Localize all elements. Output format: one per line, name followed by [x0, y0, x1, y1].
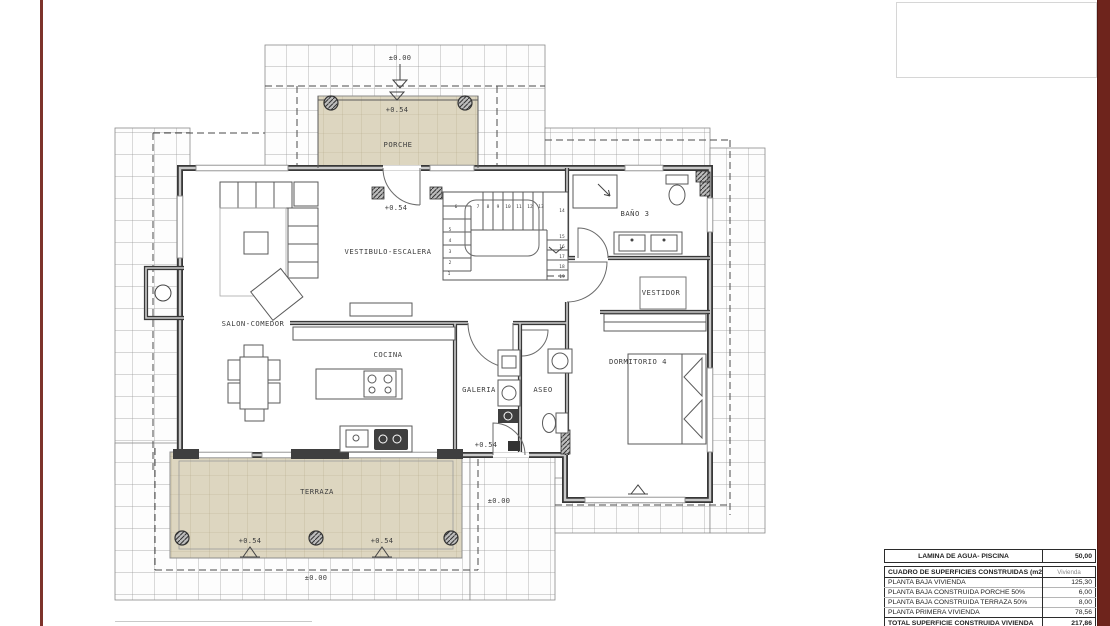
terrace-column-icon — [444, 531, 458, 545]
stair-number: 14 — [559, 208, 565, 214]
stair-number: 1 — [448, 271, 451, 277]
surface-row-label: PLANTA BAJA CONSTRUIDA PORCHE 50% — [885, 588, 1043, 598]
level-label: ±0.00 — [488, 497, 511, 505]
title-block-box — [896, 2, 1097, 78]
hall-sideboard — [350, 303, 412, 316]
stair-number: 4 — [449, 238, 452, 244]
level-label: +0.54 — [239, 537, 262, 545]
table-row: PLANTA BAJA CONSTRUIDA PORCHE 50% 6,00 — [885, 588, 1096, 598]
room-label-salon: SALON-COMEDOR — [222, 319, 285, 328]
stair-number: 17 — [559, 254, 565, 260]
pool-area-table: LAMINA DE AGUA- PISCINA 50,00 — [884, 549, 1096, 563]
stair-number: 13 — [538, 204, 544, 210]
table-row: PLANTA BAJA VIVIENDA 125,30 — [885, 578, 1096, 588]
surface-row-label: PLANTA BAJA VIVIENDA — [885, 578, 1043, 588]
stair-number: 9 — [497, 204, 500, 210]
stair-number: 11 — [516, 204, 522, 210]
surfaces-header-value: Vivienda — [1043, 567, 1096, 578]
stair-number: 16 — [559, 244, 565, 250]
staircase: 1 2 3 4 5 6 7 8 9 10 11 12 13 14 15 16 1… — [443, 192, 568, 280]
floor-plan: 1 2 3 4 5 6 7 8 9 10 11 12 13 14 15 16 1… — [0, 0, 1110, 626]
table-row: PLANTA BAJA CONSTRUIDA TERRAZA 50% 8,00 — [885, 598, 1096, 608]
room-label-vestibulo: VESTIBULO-ESCALERA — [345, 247, 432, 256]
stair-number: 15 — [559, 234, 565, 240]
terrace-column-icon — [309, 531, 323, 545]
surface-row-value: 8,00 — [1043, 598, 1096, 608]
room-label-galeria: GALERIA — [462, 385, 496, 394]
built-surfaces-table: CUADRO DE SUPERFICIES CONSTRUIDAS (m2) V… — [884, 566, 1096, 626]
room-label-terraza: TERRAZA — [300, 487, 334, 496]
level-label: ±0.00 — [389, 54, 412, 62]
table-row: LAMINA DE AGUA- PISCINA 50,00 — [885, 550, 1096, 563]
sheet-edge-line — [115, 621, 312, 622]
level-label: +0.54 — [371, 537, 394, 545]
level-label: +0.54 — [385, 204, 408, 212]
stair-number: 8 — [487, 204, 490, 210]
surfaces-header-label: CUADRO DE SUPERFICIES CONSTRUIDAS (m2) — [885, 567, 1043, 578]
surface-row-value: 6,00 — [1043, 588, 1096, 598]
drawing-sheet: 1 2 3 4 5 6 7 8 9 10 11 12 13 14 15 16 1… — [0, 0, 1110, 626]
level-label: ±0.00 — [305, 574, 328, 582]
stair-number: 18 — [559, 264, 565, 270]
stair-number: 5 — [449, 227, 452, 233]
room-label-aseo: ASEO — [533, 385, 552, 394]
stair-number: 12 — [527, 204, 533, 210]
porch-column-icon — [324, 96, 338, 110]
room-label-bano3: BAÑO 3 — [621, 209, 650, 218]
room-label-cocina: COCINA — [374, 350, 403, 359]
surface-tables: LAMINA DE AGUA- PISCINA 50,00 CUADRO DE … — [884, 549, 1096, 626]
surface-row-value: 78,56 — [1043, 608, 1096, 618]
level-label: +0.54 — [475, 441, 498, 449]
surface-row-label: PLANTA BAJA CONSTRUIDA TERRAZA 50% — [885, 598, 1043, 608]
surfaces-total-value: 217,86 — [1043, 618, 1096, 626]
table-total-row: TOTAL SUPERFICIE CONSTRUIDA VIVIENDA 217… — [885, 618, 1096, 626]
pool-table-label: LAMINA DE AGUA- PISCINA — [885, 550, 1043, 563]
stair-number: 2 — [449, 260, 452, 266]
fireplace-icon — [155, 285, 171, 301]
table-header-row: CUADRO DE SUPERFICIES CONSTRUIDAS (m2) V… — [885, 567, 1096, 578]
table-row: PLANTA PRIMERA VIVIENDA 78,56 — [885, 608, 1096, 618]
level-label: +0.54 — [386, 106, 409, 114]
surface-row-label: PLANTA PRIMERA VIVIENDA — [885, 608, 1043, 618]
sheet-border-left — [40, 0, 43, 626]
room-label-vestidor: VESTIDOR — [642, 288, 681, 297]
stair-number: 10 — [505, 204, 511, 210]
stair-number: 3 — [449, 249, 452, 255]
room-label-porche: PORCHE — [384, 140, 413, 149]
stair-number: 7 — [477, 204, 480, 210]
stair-number: 6 — [455, 204, 458, 210]
surface-row-value: 125,30 — [1043, 578, 1096, 588]
room-label-dormitorio4: DORMITORIO 4 — [609, 357, 667, 366]
terrace-column-icon — [175, 531, 189, 545]
pool-table-value: 50,00 — [1043, 550, 1096, 563]
surfaces-total-label: TOTAL SUPERFICIE CONSTRUIDA VIVIENDA — [885, 618, 1043, 626]
stair-number: 19 — [559, 274, 565, 280]
sheet-border-right — [1097, 0, 1110, 626]
porch-column-icon — [458, 96, 472, 110]
